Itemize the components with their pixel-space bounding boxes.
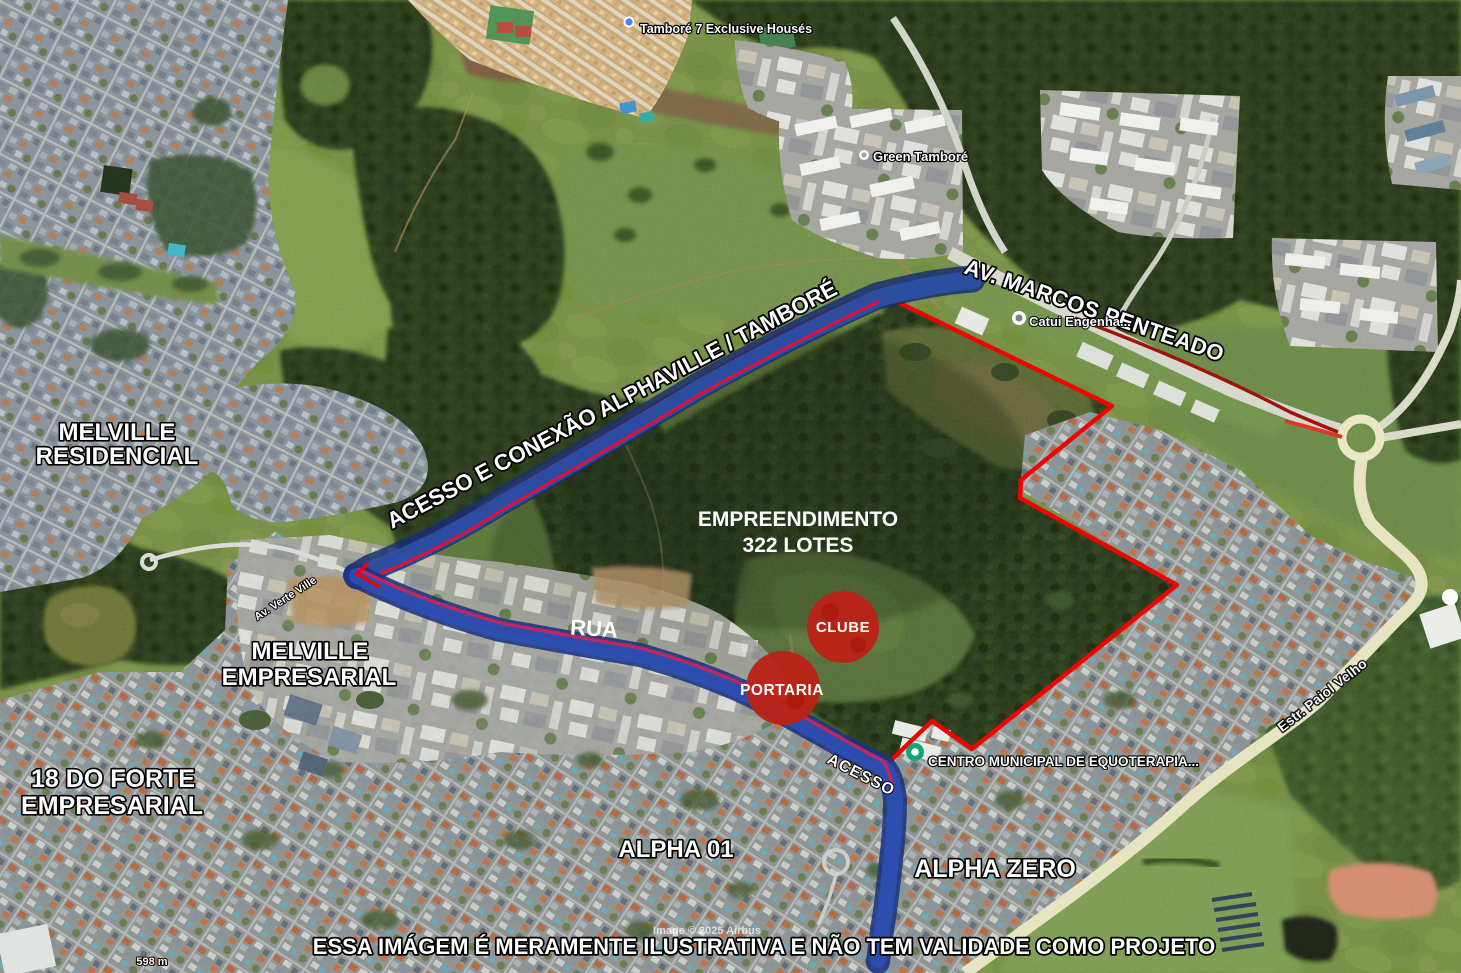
svg-text:598 m: 598 m [136, 956, 167, 968]
svg-text:PORTARIA: PORTARIA [740, 682, 824, 699]
svg-text:ESSA IMÁGEM É MERAMENTE ILUSTR: ESSA IMÁGEM É MERAMENTE ILUSTRATIVA E NÃ… [313, 934, 1215, 959]
svg-text:MELVILLE: MELVILLE [252, 638, 369, 665]
svg-text:CLUBE: CLUBE [816, 619, 870, 636]
svg-text:RUA: RUA [569, 614, 618, 642]
svg-text:Image © 2025 Airbus: Image © 2025 Airbus [653, 925, 761, 937]
svg-text:Tamboré 7 Exclusive Housés: Tamboré 7 Exclusive Housés [640, 22, 812, 36]
svg-text:322 LOTES: 322 LOTES [743, 534, 854, 557]
svg-text:Green Tamboré: Green Tamboré [873, 149, 968, 164]
svg-text:CENTRO MUNICIPAL DE EQUOTERAPI: CENTRO MUNICIPAL DE EQUOTERAPIA... [928, 754, 1199, 769]
svg-text:ALPHA ZERO: ALPHA ZERO [914, 855, 1076, 883]
svg-text:MELVILLE: MELVILLE [59, 419, 176, 446]
svg-text:EMPRESARIAL: EMPRESARIAL [21, 792, 203, 820]
svg-text:RESIDENCIAL: RESIDENCIAL [36, 443, 199, 470]
svg-text:EMPREENDIMENTO: EMPREENDIMENTO [698, 508, 898, 531]
svg-text:18 DO FORTE: 18 DO FORTE [31, 765, 195, 793]
svg-text:ALPHA 01: ALPHA 01 [618, 836, 733, 863]
svg-text:Catui Engenha...: Catui Engenha... [1029, 314, 1131, 329]
svg-text:EMPRESARIAL: EMPRESARIAL [222, 664, 397, 691]
